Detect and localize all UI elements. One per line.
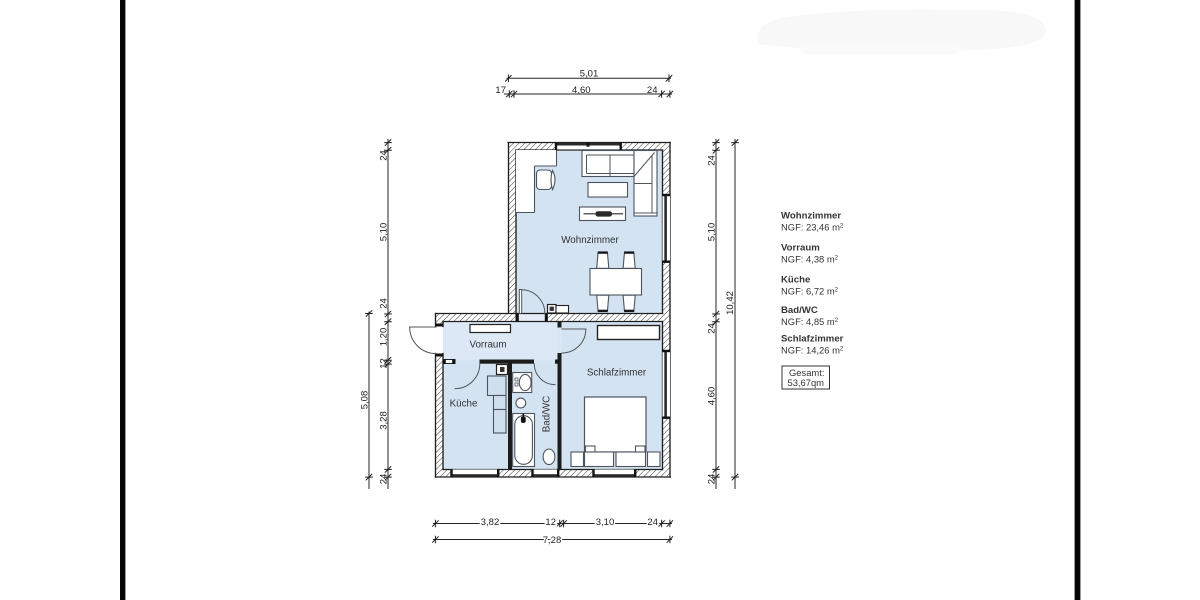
svg-text:7,28: 7,28 (543, 535, 562, 546)
svg-text:10,42: 10,42 (725, 291, 736, 315)
svg-text:17: 17 (495, 85, 506, 96)
svg-text:NGF: 6,72 m2: NGF: 6,72 m2 (781, 286, 839, 297)
svg-text:4,60: 4,60 (572, 85, 591, 96)
svg-text:24: 24 (379, 474, 390, 485)
svg-text:Schlafzimmer: Schlafzimmer (781, 334, 844, 345)
svg-text:Vorraum: Vorraum (781, 243, 820, 254)
svg-text:3,28: 3,28 (379, 411, 390, 430)
svg-text:24: 24 (707, 323, 718, 334)
svg-text:4,60: 4,60 (707, 387, 718, 406)
svg-text:24: 24 (379, 298, 390, 309)
svg-text:53,67qm: 53,67qm (788, 377, 825, 388)
svg-text:Wohnzimmer: Wohnzimmer (781, 211, 841, 222)
svg-text:24: 24 (707, 474, 718, 485)
svg-text:Vorraum: Vorraum (469, 340, 506, 351)
svg-text:NGF: 14,26 m2: NGF: 14,26 m2 (781, 345, 844, 356)
svg-text:Küche: Küche (450, 399, 478, 410)
svg-text:24: 24 (707, 155, 718, 166)
svg-text:1,20: 1,20 (379, 328, 390, 347)
svg-text:NGF: 4,38 m2: NGF: 4,38 m2 (781, 254, 839, 265)
svg-text:3,10: 3,10 (596, 517, 615, 528)
svg-text:5,08: 5,08 (360, 391, 371, 410)
svg-text:24: 24 (647, 517, 658, 528)
svg-text:5,10: 5,10 (707, 223, 718, 242)
svg-text:Küche: Küche (781, 275, 810, 286)
svg-text:3,82: 3,82 (481, 517, 500, 528)
svg-text:NGF: 23,46 m2: NGF: 23,46 m2 (781, 222, 844, 233)
svg-text:Bad/WC: Bad/WC (542, 396, 553, 432)
svg-text:Wohnzimmer: Wohnzimmer (561, 235, 619, 246)
svg-text:Schlafzimmer: Schlafzimmer (587, 368, 647, 379)
svg-text:5,10: 5,10 (379, 223, 390, 242)
svg-text:12: 12 (545, 517, 556, 528)
svg-text:Bad/WC: Bad/WC (781, 305, 818, 316)
svg-text:24: 24 (647, 85, 658, 96)
svg-text:24: 24 (379, 150, 390, 161)
svg-text:12: 12 (379, 358, 390, 369)
svg-text:NGF: 4,85 m2: NGF: 4,85 m2 (781, 316, 839, 327)
svg-text:5,01: 5,01 (580, 69, 599, 80)
